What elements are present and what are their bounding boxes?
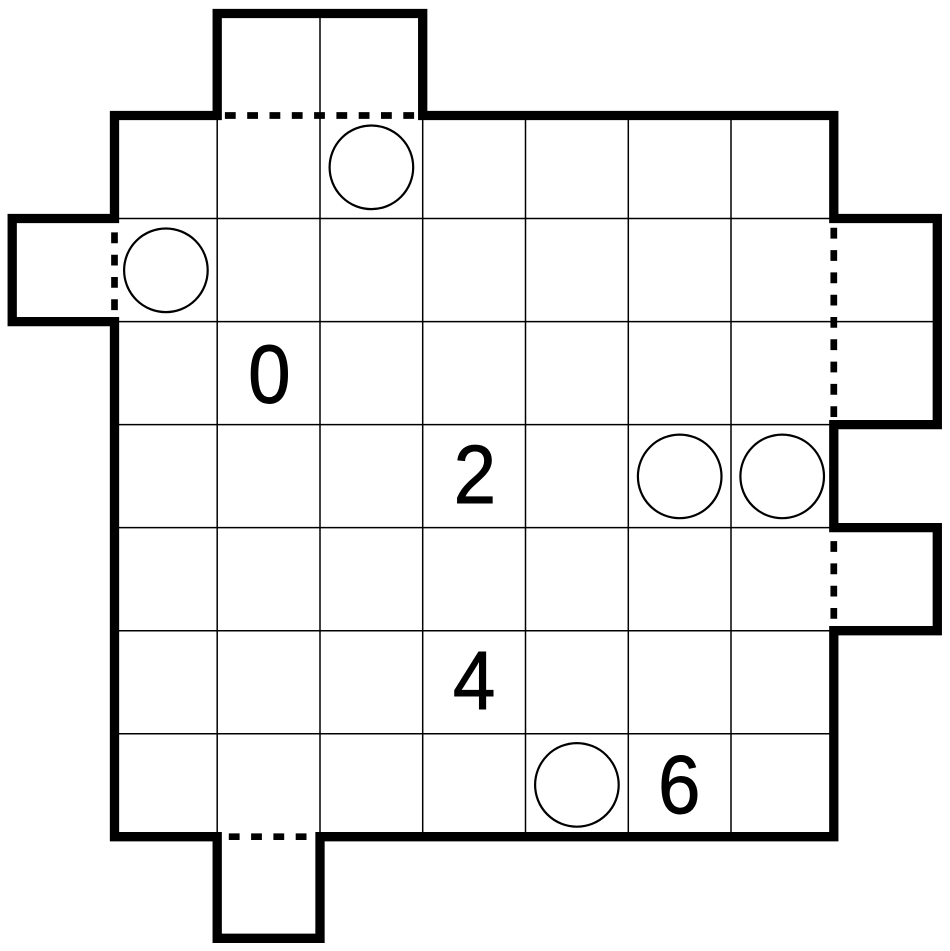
svg-text:4: 4	[453, 634, 495, 727]
svg-text:0: 0	[248, 327, 290, 420]
svg-text:6: 6	[658, 738, 700, 831]
svg-text:2: 2	[454, 428, 496, 521]
